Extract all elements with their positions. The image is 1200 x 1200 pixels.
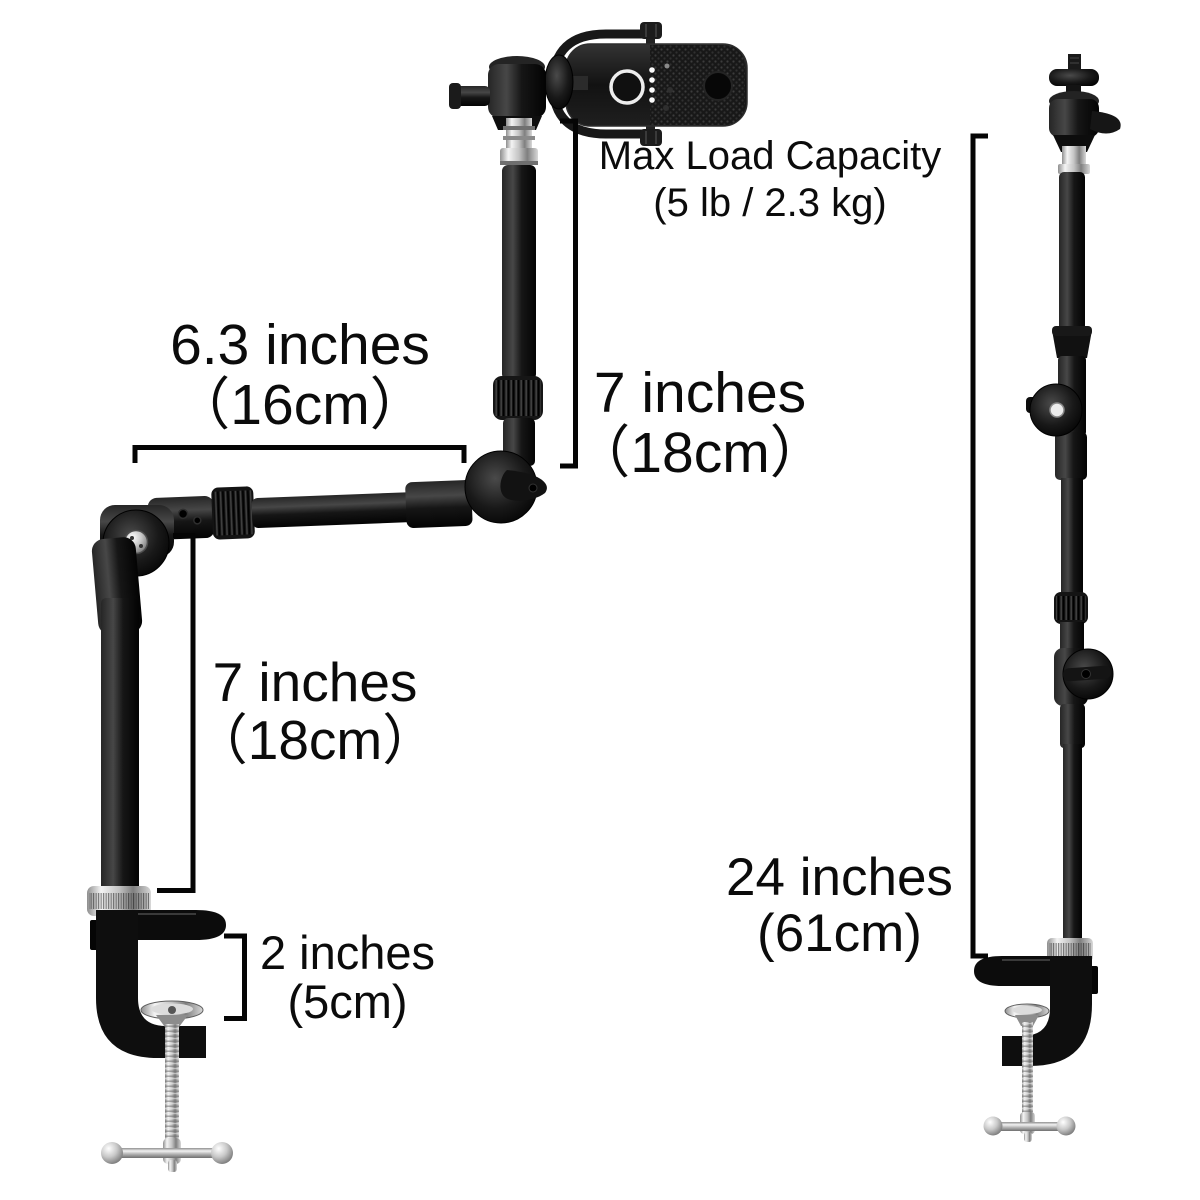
clamp-t-handle: [101, 1138, 233, 1172]
arm-length-line2: （16cm）: [120, 376, 480, 436]
clamp-opening-line2: (5cm): [250, 977, 445, 1026]
pole-ball-head-icon: [1049, 54, 1121, 174]
lock-collar-arm: [211, 486, 255, 540]
lower-riser-line2: （18cm）: [170, 712, 460, 770]
desk-clamp-left: [90, 910, 233, 1172]
ball-head-lever: [1090, 111, 1121, 134]
pole-height-label: 24 inches (61cm): [712, 850, 967, 961]
lower-riser-line1: 7 inches: [170, 654, 460, 712]
lower-riser-tube: [87, 536, 151, 916]
arm-length-line1: 6.3 inches: [120, 316, 480, 376]
desk-clamp-right: [974, 956, 1098, 1142]
bracket-24-inches: [973, 136, 988, 956]
max-load-line1: Max Load Capacity: [545, 133, 995, 180]
max-load-label: Max Load Capacity (5 lb / 2.3 kg): [545, 133, 995, 227]
ball-head-knob: [456, 86, 490, 106]
upper-riser-tube: [493, 118, 543, 466]
upper-riser-label: 7 inches （18cm）: [560, 364, 840, 484]
usb-microphone-icon: [566, 44, 747, 126]
upper-riser-line1: 7 inches: [560, 364, 840, 424]
clamp-t-handle: [984, 1112, 1076, 1142]
straight-pole-view: [974, 54, 1121, 1142]
product-dimension-diagram: Max Load Capacity (5 lb / 2.3 kg) 6.3 in…: [0, 0, 1200, 1200]
lock-collar-upper: [493, 376, 543, 420]
pole-joint-knob-upper: [1026, 384, 1082, 436]
clamp-opening-line1: 2 inches: [250, 928, 445, 977]
upper-riser-line2: （18cm）: [560, 424, 840, 484]
mic-gain-knob: [611, 71, 643, 103]
pole-height-line1: 24 inches: [712, 850, 967, 906]
lower-riser-label: 7 inches （18cm）: [170, 654, 460, 770]
clamp-opening-label: 2 inches (5cm): [250, 928, 445, 1027]
joint-lever: [500, 470, 547, 501]
bracket-6-3-inches: [135, 448, 464, 464]
horizontal-arm-tube: [147, 478, 473, 542]
arm-length-label: 6.3 inches （16cm）: [120, 316, 480, 436]
bracket-2-inches: [224, 936, 245, 1019]
max-load-line2: (5 lb / 2.3 kg): [545, 180, 995, 227]
pole-lock-collar: [1054, 592, 1088, 624]
pole-tube: [1052, 172, 1092, 946]
pole-joint-knob-lower: [1063, 649, 1113, 699]
pole-height-line2: (61cm): [712, 906, 967, 962]
